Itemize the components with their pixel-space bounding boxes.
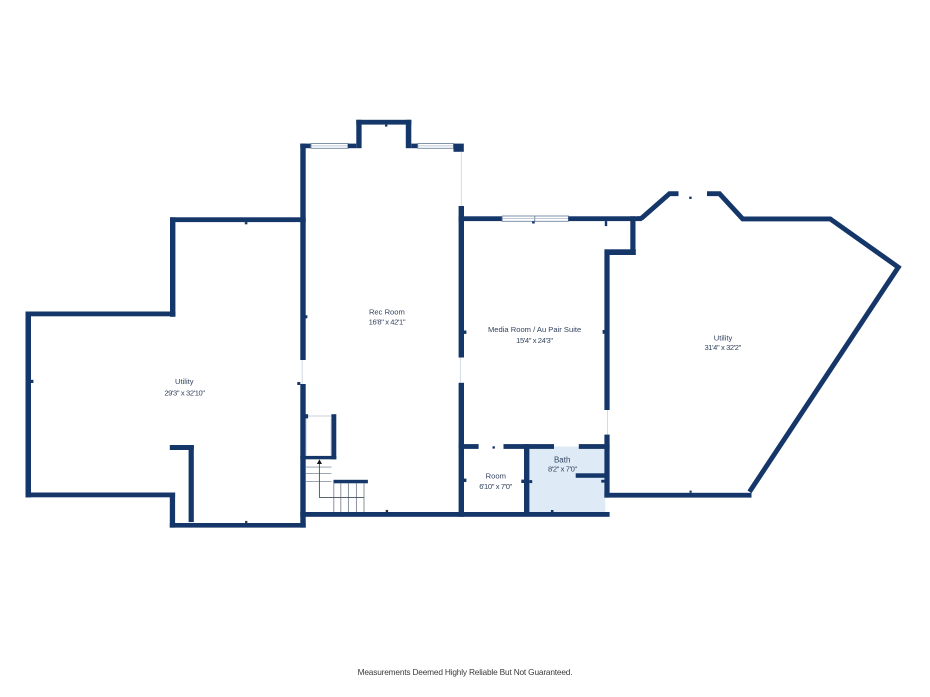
svg-text:6'10" x 7'0": 6'10" x 7'0"	[479, 482, 512, 491]
svg-text:31'4" x 32'2": 31'4" x 32'2"	[704, 343, 741, 352]
svg-text:Room: Room	[486, 472, 506, 481]
svg-text:Utility: Utility	[714, 333, 733, 342]
svg-text:Utility: Utility	[175, 377, 194, 386]
svg-text:29'3" x 32'10": 29'3" x 32'10"	[164, 389, 205, 398]
svg-text:8'2" x 7'0": 8'2" x 7'0"	[548, 464, 578, 473]
svg-text:Measurements Deemed Highly Rel: Measurements Deemed Highly Reliable But …	[358, 667, 573, 677]
svg-text:Bath: Bath	[554, 455, 570, 464]
svg-text:Rec Room: Rec Room	[369, 308, 405, 317]
svg-text:Media Room / Au Pair Suite: Media Room / Au Pair Suite	[488, 325, 581, 334]
svg-text:15'4" x 24'3": 15'4" x 24'3"	[516, 336, 553, 345]
svg-text:16'8" x 42'1": 16'8" x 42'1"	[369, 318, 406, 327]
